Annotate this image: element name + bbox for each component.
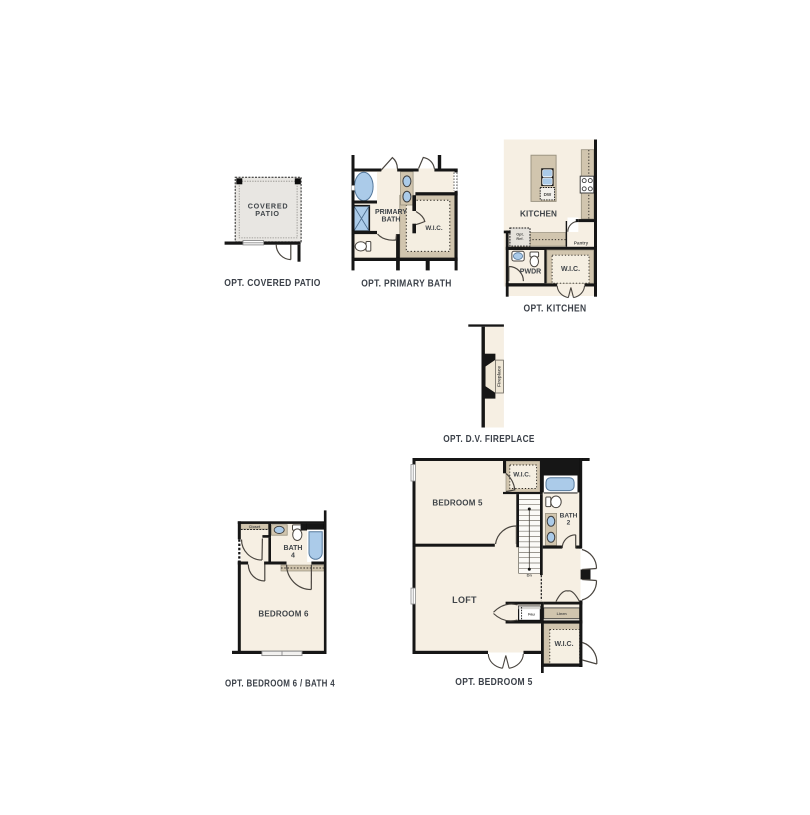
svg-text:OPT. COVERED PATIO: OPT. COVERED PATIO <box>224 278 321 289</box>
svg-text:OPT. BEDROOM 5: OPT. BEDROOM 5 <box>455 677 533 688</box>
svg-text:OPT. D.V. FIREPLACE: OPT. D.V. FIREPLACE <box>443 434 535 445</box>
svg-text:W.I.C.: W.I.C. <box>425 225 442 232</box>
svg-text:PRIMARY: PRIMARY <box>375 209 407 216</box>
svg-text:Ref.: Ref. <box>516 237 523 241</box>
svg-text:BATH: BATH <box>284 545 303 552</box>
svg-text:W.I.C.: W.I.C. <box>513 472 531 479</box>
svg-text:BATH: BATH <box>382 217 401 224</box>
svg-text:W.I.C.: W.I.C. <box>561 266 580 273</box>
svg-text:KITCHEN: KITCHEN <box>520 210 557 219</box>
svg-text:DW: DW <box>544 192 552 197</box>
svg-text:Fireplace: Fireplace <box>497 366 503 387</box>
svg-text:BATH: BATH <box>560 513 578 520</box>
svg-text:BEDROOM 5: BEDROOM 5 <box>432 499 483 508</box>
svg-text:PWDR: PWDR <box>520 269 541 276</box>
svg-text:4: 4 <box>291 553 295 560</box>
svg-text:Dn: Dn <box>527 573 533 578</box>
svg-text:W.I.C.: W.I.C. <box>554 641 573 648</box>
svg-text:BEDROOM 6: BEDROOM 6 <box>258 610 309 619</box>
svg-text:LOFT: LOFT <box>452 595 477 605</box>
svg-text:Pantry: Pantry <box>574 241 589 246</box>
svg-text:Closet: Closet <box>249 525 261 529</box>
svg-text:OPT. KITCHEN: OPT. KITCHEN <box>524 304 587 315</box>
svg-text:OPT. PRIMARY BATH: OPT. PRIMARY BATH <box>361 279 452 290</box>
svg-text:Fau: Fau <box>528 612 535 616</box>
svg-text:OPT. BEDROOM 6 / BATH 4: OPT. BEDROOM 6 / BATH 4 <box>225 679 335 690</box>
svg-text:PATIO: PATIO <box>255 209 279 218</box>
svg-text:2: 2 <box>567 520 571 527</box>
svg-text:Linen: Linen <box>557 612 568 616</box>
